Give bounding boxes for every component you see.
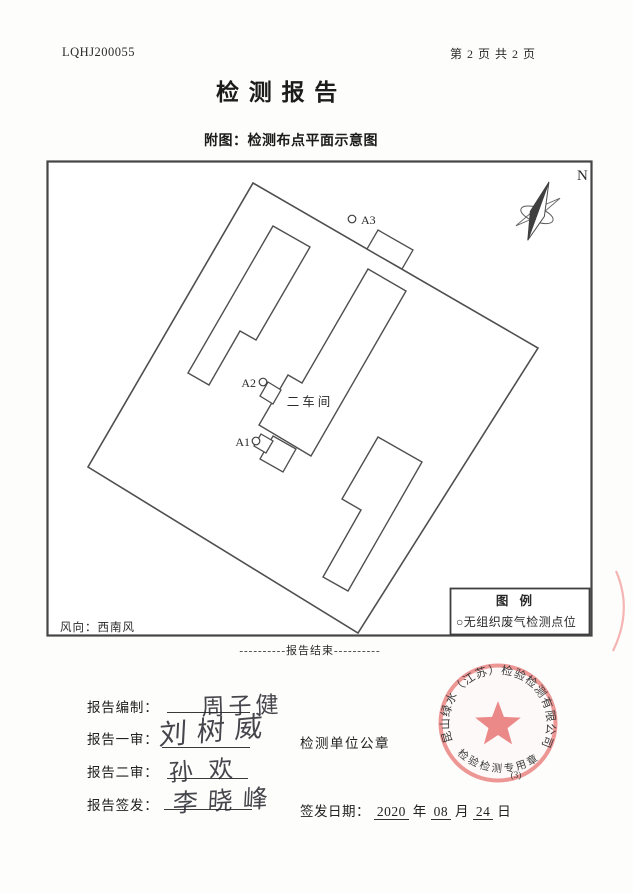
- issue-date-label: 签发日期：: [300, 804, 370, 819]
- row-label-issued-by: 报告签发：: [87, 794, 159, 814]
- site-plan-diagram: A3 A2 A1 二车间 N 图 例 ○无组织废气检测点位 风向：西南风 ---…: [0, 0, 633, 893]
- issue-date-line: 签发日期： 2020 年 08 月 24 日: [300, 800, 511, 820]
- row-label-second-review: 报告二审：: [87, 761, 159, 781]
- issue-date-year-unit: 年: [413, 804, 427, 819]
- legend-title: 图 例: [496, 593, 536, 608]
- legend-item-fugitive-gas-point: ○无组织废气检测点位: [456, 614, 576, 629]
- workshop-2-label: 二车间: [287, 394, 334, 409]
- issue-date-year: 2020: [374, 804, 409, 820]
- partial-seal-arc: [613, 571, 624, 651]
- issue-date-day: 24: [473, 804, 494, 820]
- monitoring-point-a3-label: A3: [361, 213, 376, 227]
- monitoring-point-a1-marker: [252, 437, 260, 445]
- row-label-prepared-by: 报告编制：: [87, 696, 159, 716]
- seal-number: (3): [511, 770, 522, 780]
- issue-date-month: 08: [431, 804, 452, 820]
- wind-direction-label: 风向：西南风: [60, 620, 135, 634]
- monitoring-point-a2-marker: [259, 378, 267, 386]
- issue-date-day-unit: 日: [497, 804, 511, 819]
- company-seal-stamp: 昆山绿水（江苏）检验检测有限公司 检验检测专用章 (3): [438, 663, 557, 781]
- monitoring-point-a2-label: A2: [241, 376, 256, 390]
- scanned-report-page: { "header": { "report_no": "LQHJ200055",…: [0, 0, 633, 893]
- issue-date-month-unit: 月: [455, 804, 469, 819]
- row-label-first-review: 报告一审：: [87, 728, 159, 748]
- monitoring-point-a1-label: A1: [235, 435, 250, 449]
- north-label: N: [577, 168, 588, 184]
- signature-issued-by: 李晓峰: [172, 778, 279, 820]
- seal-caption: 检测单位公章: [300, 732, 390, 752]
- report-end-line: ----------报告结束----------: [239, 643, 380, 657]
- monitoring-point-a3-marker: [348, 215, 356, 223]
